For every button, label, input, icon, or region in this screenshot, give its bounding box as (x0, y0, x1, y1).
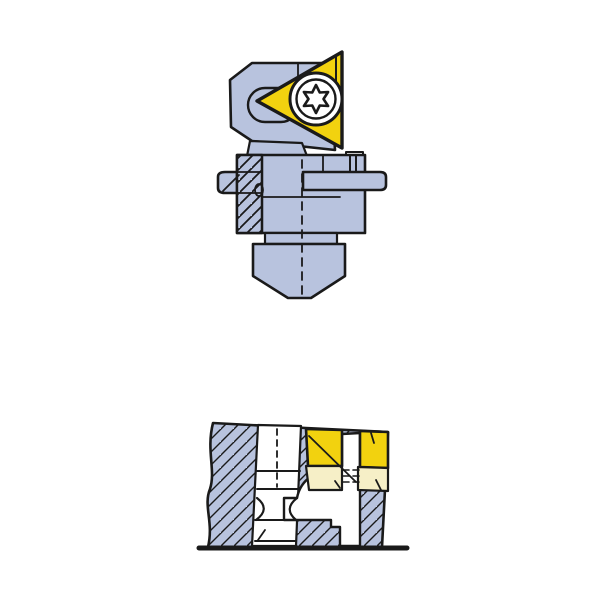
insert-shim-right (358, 467, 388, 491)
adjusting-bar (303, 172, 386, 190)
tool-drawing-canvas (0, 0, 600, 600)
insert-section-left (306, 429, 342, 466)
shank-neck (265, 233, 337, 244)
cutaway-hatch-strip (237, 155, 262, 233)
insert-section-right (360, 431, 388, 468)
torx-clamp-screw (290, 73, 342, 125)
technical-illustration-page (0, 0, 600, 600)
insert-shim-left (306, 466, 342, 490)
section-view (199, 423, 407, 548)
